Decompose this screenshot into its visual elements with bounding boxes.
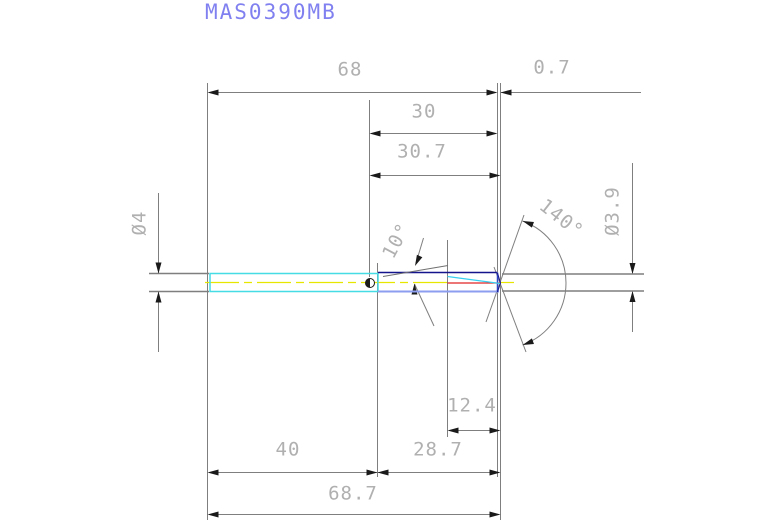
dim-label-30-7: 30.7 (397, 143, 447, 162)
cad-drawing-geometry (0, 0, 767, 523)
arrowheads (156, 90, 636, 518)
dim-label-30: 30 (412, 103, 437, 122)
drawing-title: MAS0390MB (205, 2, 337, 23)
datum-point-marker (366, 279, 375, 288)
dim-label-68-7: 68.7 (328, 485, 378, 504)
dim-label-28-7: 28.7 (413, 441, 463, 460)
dim-label-dia-4: Ø4 (131, 211, 150, 236)
part-outline (205, 266, 514, 293)
dim-label-0-7: 0.7 (533, 59, 570, 78)
taper-10deg-line (383, 266, 448, 277)
dim-label-68: 68 (338, 61, 363, 80)
cad-drawing-canvas: MAS0390MB 68 0.7 30 30.7 12.4 40 28.7 68… (0, 0, 767, 523)
dim-label-12-4: 12.4 (447, 397, 497, 416)
dim-label-40: 40 (276, 441, 301, 460)
dim-label-dia-3-9: Ø3.9 (604, 186, 623, 236)
